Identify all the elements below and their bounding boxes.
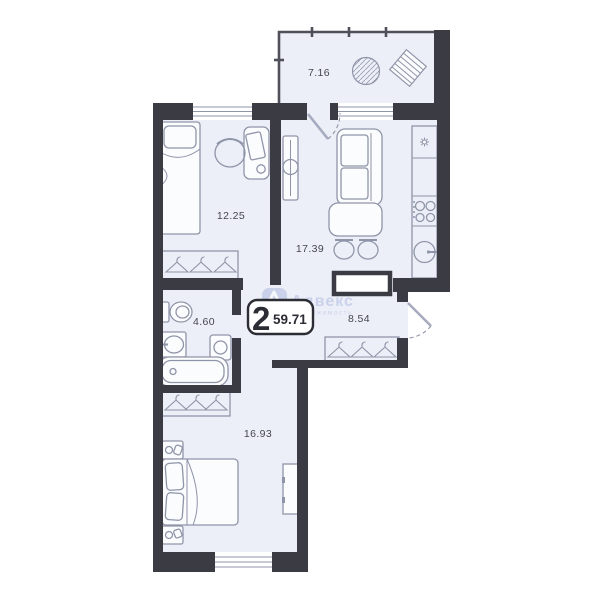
label-bedroom-2: 16.93: [244, 428, 272, 440]
window-kitchen: [338, 103, 393, 120]
badge-room-count: 2: [252, 300, 270, 337]
balcony-table-icon: [353, 58, 380, 85]
label-kitchen-living: 17.39: [296, 243, 324, 255]
label-balcony: 7.16: [308, 67, 330, 79]
nightstand-bottom-icon: [162, 526, 183, 544]
label-bathroom: 4.60: [193, 316, 215, 328]
washing-machine-icon: [210, 335, 231, 360]
bathtub-icon: [158, 357, 228, 386]
desk-icon: [244, 127, 269, 179]
label-bedroom-1: 12.25: [217, 210, 245, 222]
area-badge: 2 59.71: [248, 300, 313, 337]
dining-table-icon: [329, 203, 382, 236]
floor-plan-page: Адвекс недвижимость 2 59.71 7.16 12.25 1…: [0, 0, 600, 600]
toilet-icon: [161, 302, 192, 322]
floor-plan: Адвекс недвижимость 2 59.71 7.16 12.25 1…: [0, 0, 600, 600]
nightstand-top-icon: [162, 441, 183, 459]
vent-shaft: [334, 273, 390, 294]
window-bedroom2: [215, 552, 272, 572]
bed-double-icon: [162, 459, 238, 525]
window-bedroom1: [193, 103, 252, 120]
sofa-icon: [337, 129, 382, 205]
entrance-door: [408, 303, 431, 338]
bathroom-sink-icon: [161, 332, 186, 357]
label-hallway: 8.54: [348, 313, 370, 325]
badge-total-area: 59.71: [273, 312, 307, 327]
tv-cabinet-icon: [283, 136, 298, 200]
vent-icon: [420, 138, 429, 147]
bed-single-icon: [160, 122, 200, 234]
upper-floor: [163, 103, 437, 292]
